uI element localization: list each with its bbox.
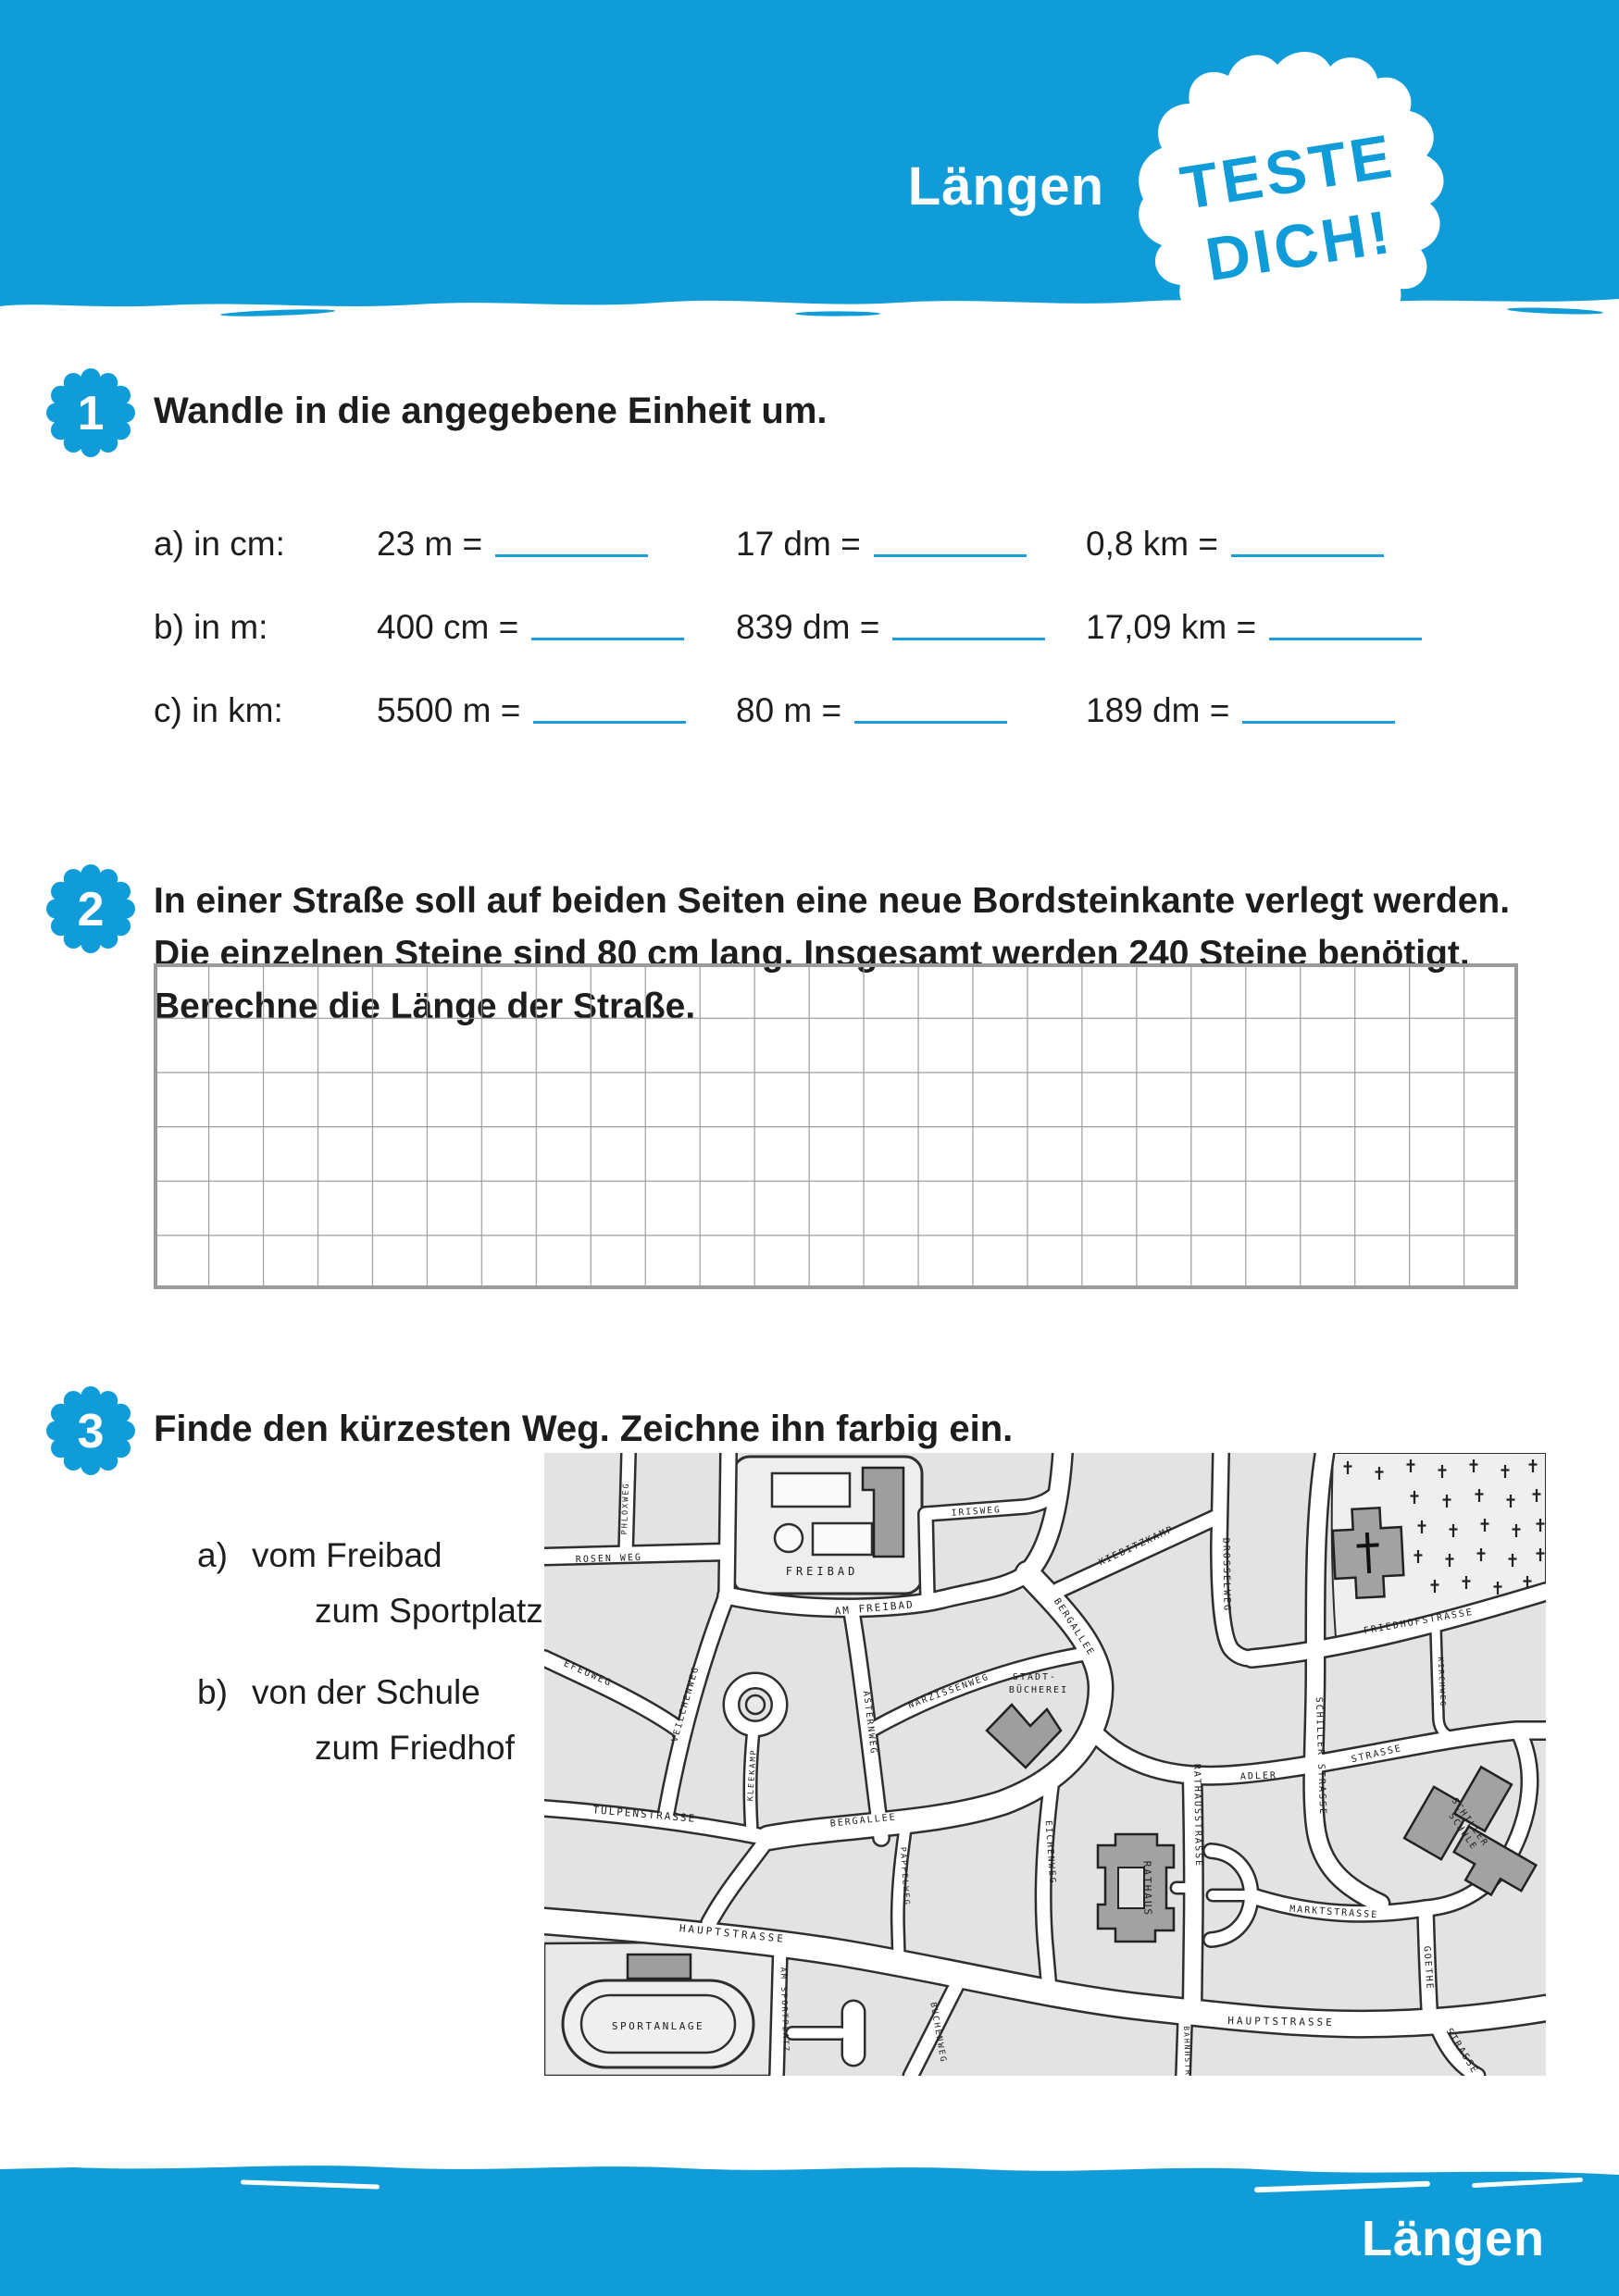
footer-brush-edge [0, 2162, 1619, 2180]
task-3-heading: Finde den kürzesten Weg. Zeichne ihn far… [154, 1409, 1013, 1450]
answer-blank[interactable] [1242, 715, 1395, 724]
subtask-b-line-1: von der Schule [252, 1673, 480, 1712]
expression: 17,09 km = [1086, 608, 1256, 646]
expression: 839 dm = [736, 608, 879, 646]
task-2-line-1: In einer Straße soll auf beiden Seiten e… [154, 881, 1510, 922]
task-1-row-c: c) in km: 5500 m = 80 m = 189 dm = [0, 691, 1619, 743]
subtask-b-label: b) [197, 1673, 228, 1712]
teste-dich-badge: TESTE DICH! [1115, 46, 1472, 356]
city-map[interactable]: ROSEN WEG PHLOXWEG FREIBAD AM FREIBAD IR… [544, 1453, 1546, 2076]
task-3-number-badge: 3 [46, 1386, 135, 1475]
task-3-number: 3 [78, 1404, 105, 1458]
task-1-number: 1 [78, 386, 105, 440]
row-label: a) in cm: [154, 525, 285, 564]
expression: 17 dm = [736, 525, 861, 563]
subtask-a-line-2: zum Sportplatz [315, 1592, 543, 1631]
task-1-number-badge: 1 [46, 368, 135, 457]
row-label: c) in km: [154, 691, 283, 730]
place-label-stadtbuecherei-line2: BÜCHEREI [1009, 1683, 1068, 1695]
row-label: b) in m: [154, 608, 268, 647]
street-label-drosselweg: DROSSELWEG [1220, 1538, 1231, 1612]
answer-blank[interactable] [874, 549, 1027, 557]
page-title: Längen [908, 155, 1104, 217]
subtask-b-line-2: zum Friedhof [315, 1729, 515, 1768]
task-1-row-a: a) in cm: 23 m = 17 dm = 0,8 km = [0, 525, 1619, 577]
worksheet-page: Längen TESTE DICH! 1 Wandle in die angeg… [0, 0, 1619, 2296]
answer-blank[interactable] [533, 715, 686, 724]
answer-blank[interactable] [531, 632, 684, 640]
expression: 80 m = [736, 691, 841, 729]
rathaus-building [1098, 1834, 1174, 1942]
roundabout-island [746, 1695, 765, 1714]
subtask-a-label: a) [197, 1536, 228, 1575]
sportplatz-building [628, 1955, 691, 1979]
place-label-freibad: FREIBAD [786, 1565, 859, 1578]
street-label-phloxweg: PHLOXWEG [620, 1482, 631, 1534]
street-label-rathausstrasse: RATHAUSSTRASSE [1191, 1764, 1203, 1868]
place-label-rathaus: RATHAUS [1140, 1861, 1153, 1917]
task-2-number: 2 [78, 882, 105, 936]
answer-blank[interactable] [495, 549, 648, 557]
expression: 5500 m = [377, 691, 520, 729]
footer-title: Längen [1362, 2210, 1545, 2267]
place-label-sportanlage: SPORTANLAGE [612, 2020, 704, 2032]
expression: 400 cm = [377, 608, 518, 646]
working-grid[interactable] [154, 963, 1518, 1289]
place-label-stadtbuecherei-line1: STADT- [1013, 1672, 1057, 1682]
answer-blank[interactable] [854, 715, 1007, 724]
task-1-heading: Wandle in die angegebene Einheit um. [154, 391, 828, 432]
answer-blank[interactable] [892, 632, 1045, 640]
answer-blank[interactable] [1269, 632, 1422, 640]
task-2-number-badge: 2 [46, 864, 135, 953]
task-1-row-b: b) in m: 400 cm = 839 dm = 17,09 km = [0, 608, 1619, 660]
expression: 0,8 km = [1086, 525, 1218, 563]
street-label-bahnhofstr: BAHNHSTR. [1182, 2026, 1192, 2076]
answer-blank[interactable] [1231, 549, 1384, 557]
street-label-hauptstrasse-east: HAUPTSTRASSE [1227, 2015, 1335, 2029]
expression: 23 m = [377, 525, 482, 563]
expression: 189 dm = [1086, 691, 1229, 729]
subtask-a-line-1: vom Freibad [252, 1536, 442, 1575]
street-label-adler: ADLER [1240, 1770, 1277, 1781]
